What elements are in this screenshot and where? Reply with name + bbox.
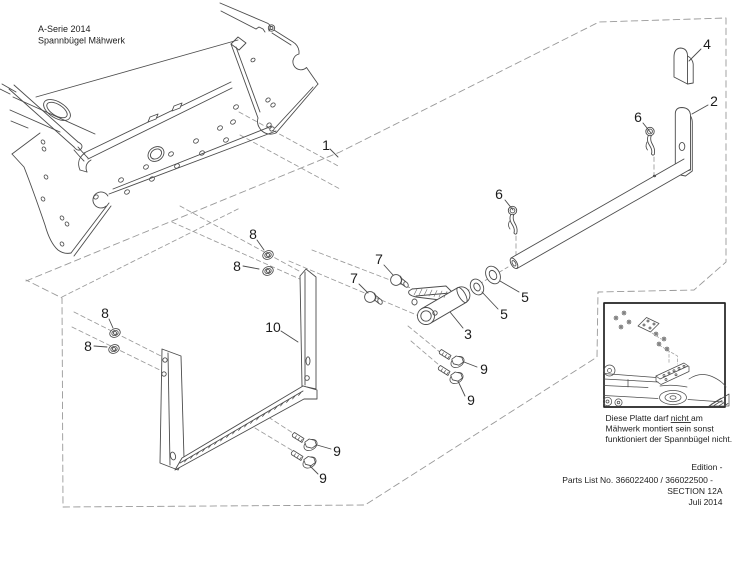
svg-text:1: 1 xyxy=(322,137,330,153)
svg-text:Juli 2014: Juli 2014 xyxy=(688,497,722,507)
svg-text:8: 8 xyxy=(84,338,92,354)
svg-text:5: 5 xyxy=(500,306,508,322)
svg-text:4: 4 xyxy=(703,36,711,52)
svg-text:9: 9 xyxy=(467,392,475,408)
svg-text:6: 6 xyxy=(634,109,642,125)
svg-text:Parts List No. 366022400 / 366: Parts List No. 366022400 / 366022500 - xyxy=(562,475,713,485)
svg-text:10: 10 xyxy=(265,319,281,335)
svg-text:7: 7 xyxy=(350,270,358,286)
svg-text:5: 5 xyxy=(521,289,529,305)
svg-text:A-Serie 2014: A-Serie 2014 xyxy=(38,24,91,34)
svg-text:Diese Platte darf nicht am: Diese Platte darf nicht am xyxy=(606,413,703,423)
svg-text:3: 3 xyxy=(464,326,472,342)
svg-text:Mähwerk montiert sein sonst: Mähwerk montiert sein sonst xyxy=(606,424,715,434)
svg-text:SECTION 12A: SECTION 12A xyxy=(667,486,723,496)
svg-text:8: 8 xyxy=(101,305,109,321)
svg-text:8: 8 xyxy=(249,226,257,242)
svg-text:9: 9 xyxy=(480,361,488,377)
svg-text:7: 7 xyxy=(375,251,383,267)
svg-text:6: 6 xyxy=(495,186,503,202)
svg-text:9: 9 xyxy=(333,443,341,459)
svg-text:Spannbügel Mähwerk: Spannbügel Mähwerk xyxy=(38,36,126,46)
svg-text:9: 9 xyxy=(319,470,327,486)
svg-text:2: 2 xyxy=(710,93,718,109)
svg-text:8: 8 xyxy=(233,258,241,274)
svg-text:Edition -: Edition - xyxy=(691,462,722,472)
svg-text:funktioniert der Spannbügel ni: funktioniert der Spannbügel nicht. xyxy=(606,434,733,444)
